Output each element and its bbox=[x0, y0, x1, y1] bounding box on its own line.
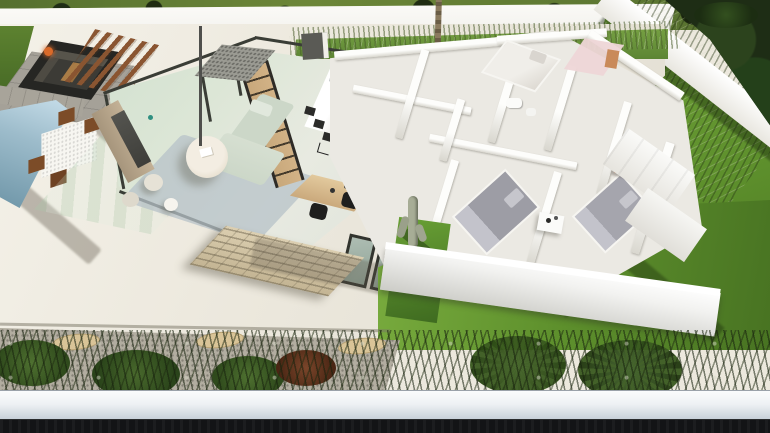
coffee-table bbox=[186, 136, 228, 178]
nightstand-decor bbox=[554, 216, 558, 220]
pouf bbox=[144, 174, 163, 191]
pouf bbox=[122, 192, 139, 207]
ornamental-grass-row bbox=[0, 330, 770, 396]
fire-pit bbox=[44, 47, 53, 56]
front-boundary-wall bbox=[0, 390, 770, 420]
floorplan-3d-render bbox=[0, 0, 770, 433]
street-edge bbox=[0, 419, 770, 433]
desk-item bbox=[330, 188, 335, 193]
decor-vase bbox=[148, 115, 153, 120]
nightstand-lamp bbox=[546, 218, 551, 223]
bathroom-fixture bbox=[526, 108, 536, 116]
bathroom-fixture bbox=[506, 98, 522, 108]
foliage-bush bbox=[694, 2, 758, 28]
cactus bbox=[408, 196, 418, 248]
outdoor-shower-pole bbox=[199, 26, 202, 146]
pouf bbox=[164, 198, 178, 211]
entry-door bbox=[301, 32, 329, 60]
